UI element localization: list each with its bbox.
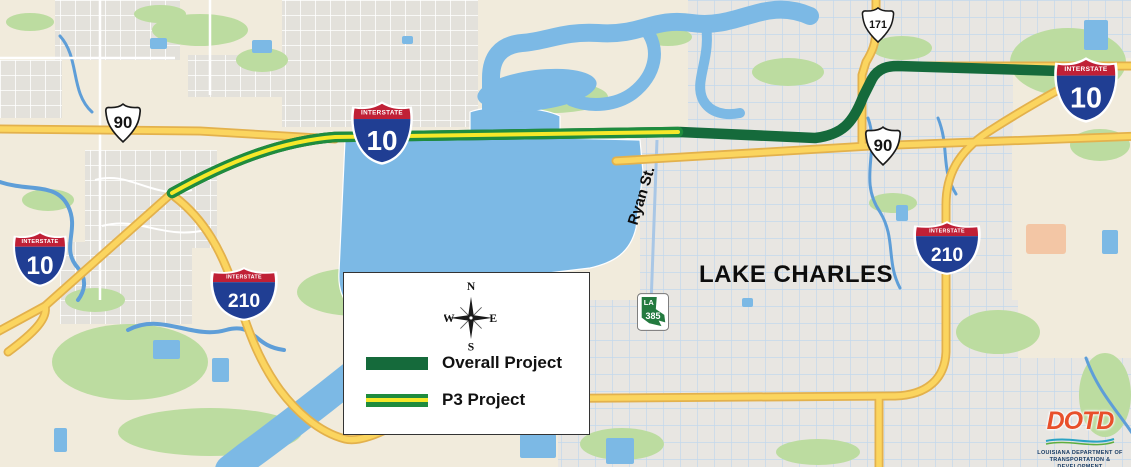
svg-text:E: E [489, 312, 497, 325]
legend-label: P3 Project [442, 390, 525, 410]
shield-i10-west: INTERSTATE 10 [12, 230, 68, 288]
overall-project-swatch [366, 357, 428, 370]
svg-text:N: N [467, 280, 476, 293]
svg-text:INTERSTATE: INTERSTATE [226, 274, 262, 280]
svg-text:10: 10 [1070, 83, 1102, 115]
shield-i210-west: INTERSTATE 210 [209, 266, 279, 322]
legend: N W E S Overall Project P3 Project [343, 272, 590, 435]
shield-i10-east: INTERSTATE 10 [1053, 56, 1119, 124]
svg-text:90: 90 [874, 136, 893, 155]
svg-text:INTERSTATE: INTERSTATE [361, 110, 403, 117]
p3-project-swatch [366, 394, 428, 407]
svg-text:210: 210 [228, 290, 260, 312]
shield-i10-center: INTERSTATE 10 [350, 100, 414, 166]
poi-area [1026, 224, 1066, 254]
svg-text:210: 210 [931, 244, 963, 266]
dotd-sub-line1: LOUISIANA DEPARTMENT OF [1032, 450, 1128, 457]
shield-us90-west: 90 [102, 102, 144, 144]
city-label: LAKE CHARLES [699, 261, 893, 289]
dotd-sub-line2: TRANSPORTATION & DEVELOPMENT [1032, 457, 1128, 467]
dotd-swoosh-icon [1044, 437, 1116, 446]
svg-text:10: 10 [366, 125, 397, 156]
dotd-logo: DOTD LOUISIANA DEPARTMENT OF TRANSPORTAT… [1032, 409, 1128, 467]
dotd-logo-text: DOTD [1032, 409, 1128, 434]
shield-us171: 171 [859, 6, 897, 44]
svg-text:INTERSTATE: INTERSTATE [22, 239, 59, 245]
legend-label: Overall Project [442, 353, 562, 373]
svg-text:385: 385 [646, 311, 661, 321]
svg-text:171: 171 [869, 19, 887, 31]
shield-us90-east: 90 [862, 125, 904, 167]
svg-text:INTERSTATE: INTERSTATE [929, 228, 965, 234]
shield-i210-east: INTERSTATE 210 [912, 220, 982, 276]
shield-la385: LA 385 [637, 293, 669, 331]
p3-swatch-stripe [366, 398, 428, 403]
legend-item-p3: P3 Project [366, 390, 525, 410]
svg-text:10: 10 [26, 253, 53, 280]
svg-text:90: 90 [114, 113, 133, 132]
svg-text:INTERSTATE: INTERSTATE [1064, 66, 1108, 73]
svg-text:S: S [468, 341, 474, 353]
project-map: INTERSTATE 10 INTERSTATE 10 INTERSTATE 1… [0, 0, 1131, 467]
legend-item-overall: Overall Project [366, 353, 562, 373]
svg-text:LA: LA [644, 298, 655, 307]
compass-rose-icon: N W E S [444, 279, 498, 353]
